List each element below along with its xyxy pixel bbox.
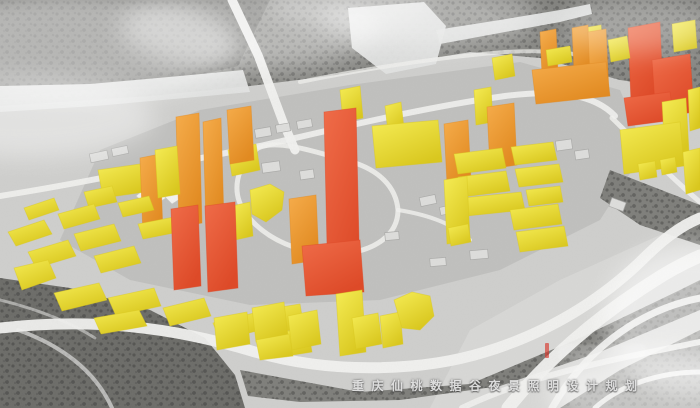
masterplan-screenshot: 重庆仙桃数据谷夜景照明设计规划 [0, 0, 700, 408]
yellow-small-east-b [660, 157, 677, 175]
logo-tick-mark [545, 343, 549, 358]
red-twin-tower-a [171, 205, 201, 290]
red-landmark-podium [302, 240, 364, 296]
orange-tower-w3 [227, 106, 254, 164]
faint-logo-watermark [545, 341, 655, 361]
yellow-edge-right [688, 87, 700, 131]
yellow-h-slab [372, 120, 442, 168]
yellow-small-east-a [638, 161, 657, 180]
logo-blur-shape [558, 344, 646, 359]
yellow-row-f [526, 186, 563, 206]
yellow-roadside-box [492, 54, 515, 80]
yellow-block-s [214, 312, 250, 350]
yellow-lower-east [683, 148, 700, 194]
red-twin-tower-b [205, 202, 238, 292]
yellow-block-s [288, 310, 321, 350]
yellow-oval-s [352, 313, 382, 349]
yellow-u-infill [546, 46, 572, 66]
yellow-box-center [448, 224, 471, 246]
watermark-text: 重庆仙桃数据谷夜景照明设计规划 [352, 377, 645, 394]
yellow-tower-west [155, 146, 180, 198]
